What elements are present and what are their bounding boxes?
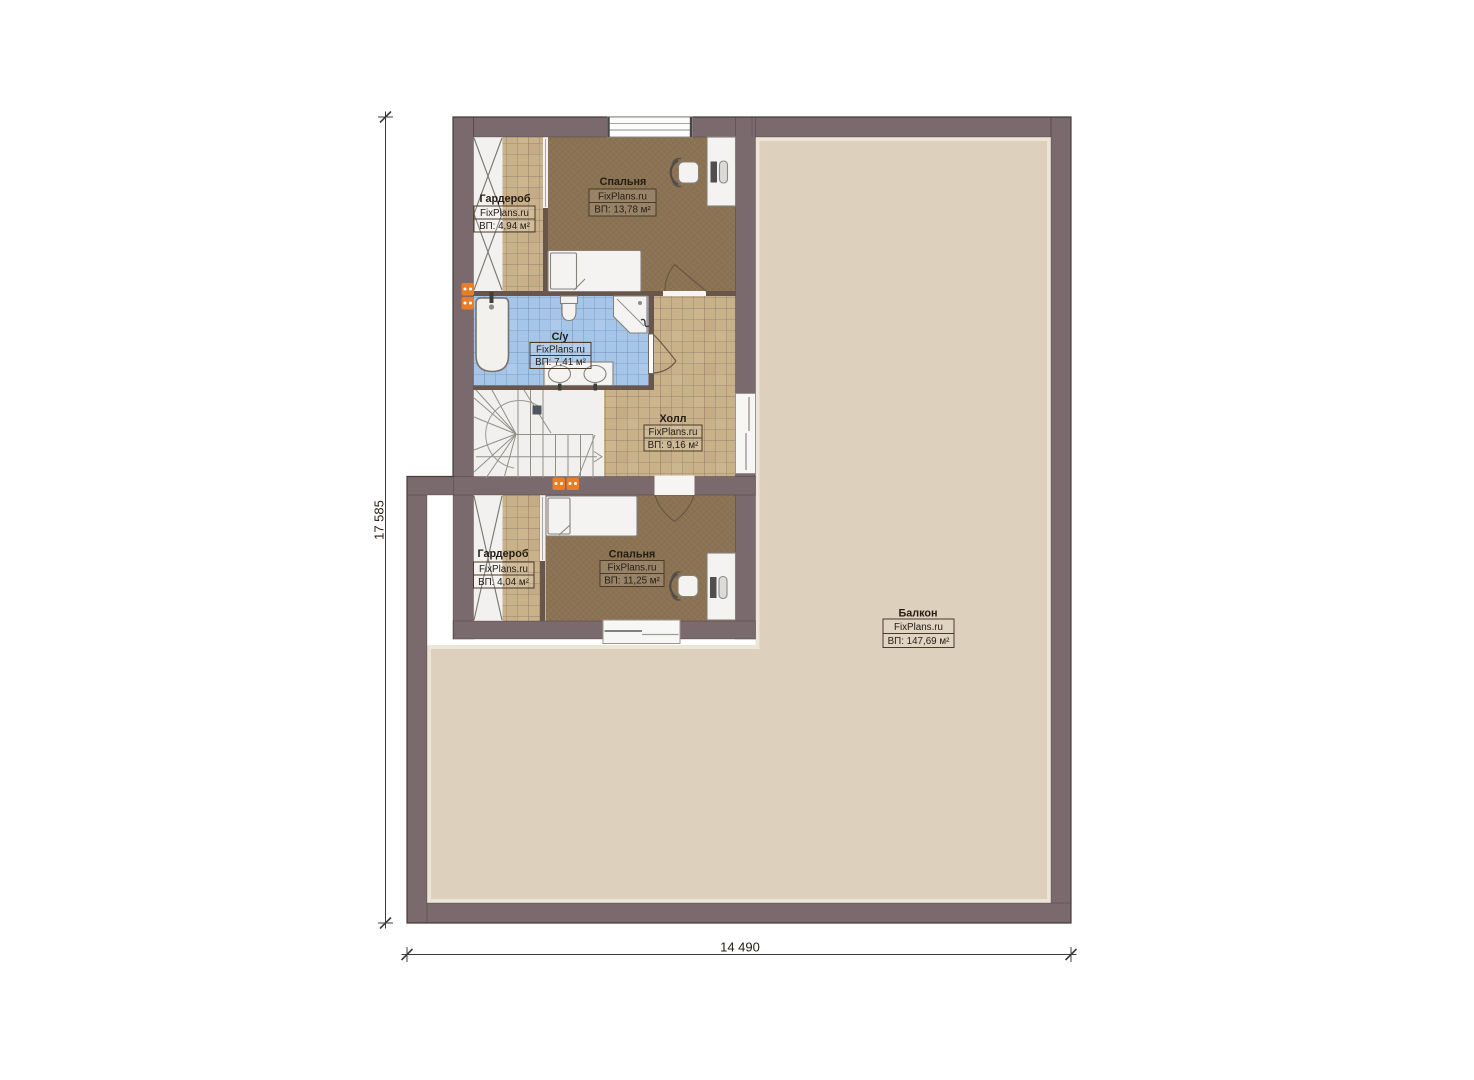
svg-text:Гардероб: Гардероб bbox=[479, 193, 530, 205]
svg-text:ВП: 9,16 м²: ВП: 9,16 м² bbox=[648, 440, 700, 451]
svg-text:ВП: 147,69 м²: ВП: 147,69 м² bbox=[888, 636, 950, 647]
svg-text:С/у: С/у bbox=[552, 331, 569, 343]
svg-text:FixPlans.ru: FixPlans.ru bbox=[649, 427, 698, 438]
svg-text:14 490: 14 490 bbox=[720, 940, 760, 955]
svg-text:FixPlans.ru: FixPlans.ru bbox=[894, 622, 943, 633]
svg-text:Холл: Холл bbox=[659, 413, 686, 425]
svg-text:FixPlans.ru: FixPlans.ru bbox=[608, 563, 657, 574]
svg-text:Спальня: Спальня bbox=[609, 549, 656, 561]
svg-text:FixPlans.ru: FixPlans.ru bbox=[536, 345, 585, 356]
svg-text:FixPlans.ru: FixPlans.ru bbox=[598, 192, 647, 203]
svg-text:17 585: 17 585 bbox=[372, 500, 387, 540]
svg-text:ВП: 11,25 м²: ВП: 11,25 м² bbox=[604, 576, 660, 587]
svg-text:ВП: 4,04 м²: ВП: 4,04 м² bbox=[478, 577, 530, 588]
svg-text:Гардероб: Гардероб bbox=[477, 548, 528, 560]
svg-text:Балкон: Балкон bbox=[898, 608, 937, 620]
svg-text:FixPlans.ru: FixPlans.ru bbox=[479, 564, 528, 575]
svg-text:ВП: 4,94 м²: ВП: 4,94 м² bbox=[479, 221, 531, 232]
svg-text:FixPlans.ru: FixPlans.ru bbox=[480, 208, 529, 219]
svg-text:ВП: 7,41 м²: ВП: 7,41 м² bbox=[535, 357, 587, 368]
svg-text:Спальня: Спальня bbox=[600, 176, 647, 188]
svg-text:ВП: 13,78 м²: ВП: 13,78 м² bbox=[594, 205, 651, 216]
